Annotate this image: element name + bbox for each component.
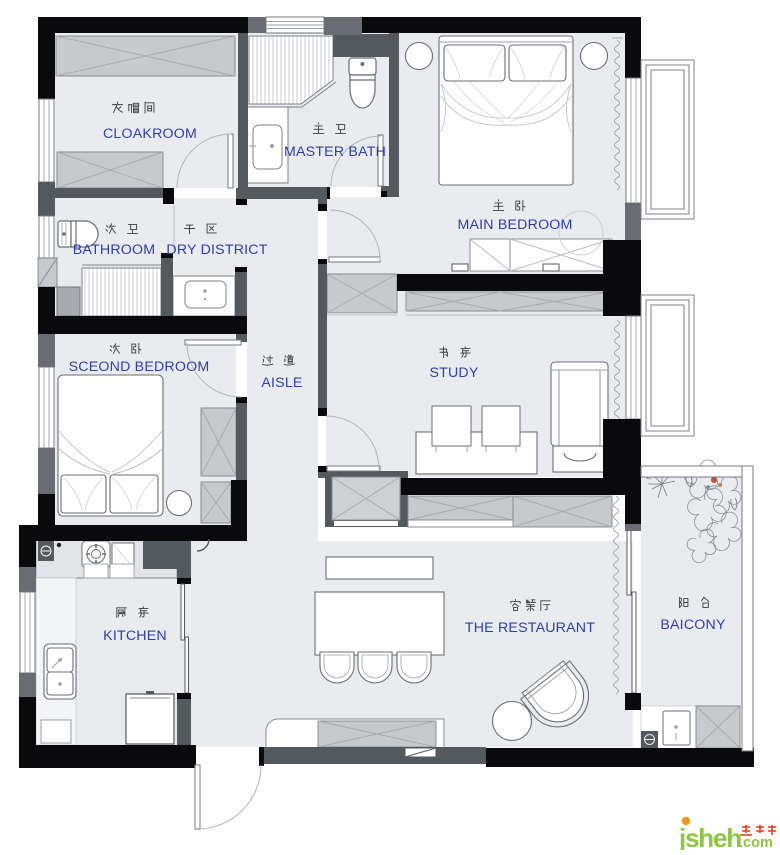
svg-text:SCEOND BEDROOM: SCEOND BEDROOM [69, 359, 210, 375]
svg-text:MAIN BEDROOM: MAIN BEDROOM [457, 217, 572, 233]
svg-text:KITCHEN: KITCHEN [103, 628, 167, 644]
svg-text:THE RESTAURANT: THE RESTAURANT [465, 620, 595, 636]
svg-text:BAICONY: BAICONY [660, 617, 726, 633]
svg-text:MASTER BATH: MASTER BATH [284, 144, 386, 160]
svg-text:AISLE: AISLE [261, 375, 302, 391]
svg-text:BATHROOM: BATHROOM [73, 242, 156, 258]
svg-text:DRY DISTRICT: DRY DISTRICT [166, 242, 267, 258]
svg-text:CLOAKROOM: CLOAKROOM [103, 126, 197, 142]
svg-text:STUDY: STUDY [429, 365, 478, 381]
svg-text:jsheh: jsheh [678, 823, 741, 850]
svg-text:.com: .com [739, 835, 773, 850]
